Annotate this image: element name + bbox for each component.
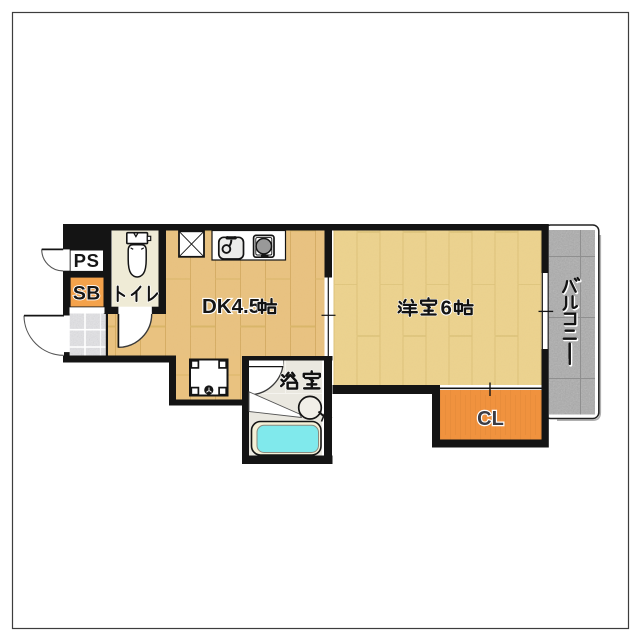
- svg-text:6: 6: [441, 297, 452, 320]
- svg-text:CL: CL: [477, 408, 504, 430]
- svg-text:SB: SB: [73, 282, 101, 304]
- svg-text:PS: PS: [74, 250, 100, 271]
- svg-text:DK4.5: DK4.5: [202, 295, 260, 318]
